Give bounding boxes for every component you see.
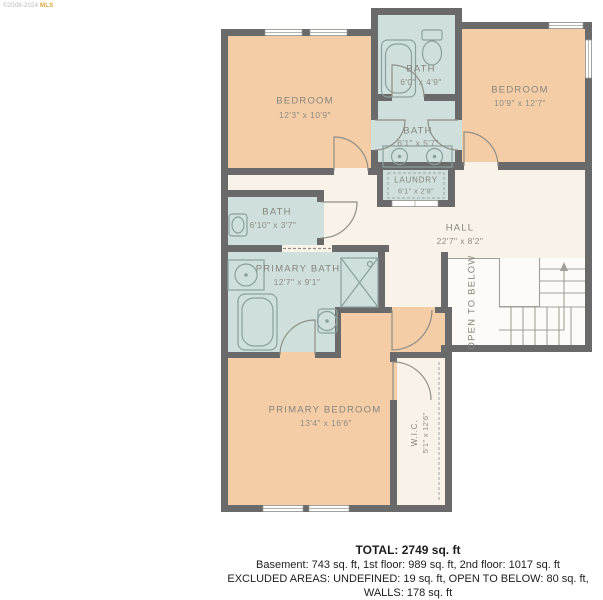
wall [221, 245, 282, 252]
sink-drain [245, 274, 247, 276]
laundry-bifold-door [392, 201, 438, 207]
primary-bedroom-dims: 13'4" x 16'6" [300, 418, 352, 428]
wall [228, 190, 324, 197]
wall [498, 162, 592, 170]
bath2-label: BATH [403, 126, 432, 137]
window [586, 40, 592, 78]
area-summary: TOTAL: 2749 sq. ft Basement: 743 sq. ft,… [210, 543, 603, 600]
wall [371, 15, 378, 120]
bedroom2-floor [462, 29, 585, 162]
bath1-dims: 6'0" x 4'9" [400, 77, 442, 87]
sink-drain [398, 155, 400, 157]
bath3-dims: 6'10" x 3'7" [250, 220, 297, 230]
wall [435, 307, 448, 313]
hall-label: HALL [446, 223, 475, 234]
bedroom1-dims: 12'3" x 10'9" [279, 110, 331, 120]
bedroom1-label: BEDROOM [276, 96, 334, 107]
wall [441, 345, 592, 352]
floor-areas: Basement: 743 sq. ft, 1st floor: 989 sq.… [210, 558, 603, 572]
wall [424, 94, 462, 101]
bath2-dims: 6'1" x 5'7" [397, 138, 439, 148]
wall [221, 29, 228, 512]
wall [371, 162, 464, 170]
wall [368, 168, 378, 175]
total-area: TOTAL: 2749 sq. ft [210, 543, 603, 557]
bedroom2-dims: 10'9" x 12'7" [494, 98, 546, 108]
primary-bath-dims: 12'7" x 9'1" [274, 277, 321, 287]
wall [221, 168, 334, 175]
bath3-label: BATH [262, 207, 291, 218]
wall [390, 400, 397, 505]
window [309, 506, 349, 512]
watermark-text: ©2008-2024 [3, 3, 38, 9]
floor-plan-page: ©2008-2024 MLS BEDROOM 12'3" x 10'9" BAT… [0, 0, 603, 600]
window [263, 506, 303, 512]
primary-bedroom-label: PRIMARY BEDROOM [269, 405, 382, 416]
window [549, 23, 583, 29]
wall [221, 352, 280, 358]
laundry-floor [383, 170, 448, 200]
hall-corridor-floor [378, 252, 448, 313]
laundry-dims: 6'1" x 2'8" [398, 187, 434, 196]
wall [315, 352, 341, 358]
wall [455, 150, 462, 162]
wall [445, 352, 452, 512]
wic-dims: 5'1" x 12'6" [420, 413, 431, 454]
hall-dims: 22'7" x 8'2" [437, 236, 484, 246]
wall [371, 8, 462, 15]
bath1-floor [371, 15, 462, 101]
primary-bath-label: PRIMARY BATH [256, 264, 341, 275]
wall [455, 15, 462, 120]
mls-watermark: ©2008-2024 MLS [3, 3, 53, 9]
window [265, 30, 302, 36]
sink-drain [326, 320, 328, 322]
wall [317, 190, 324, 202]
wall [378, 245, 385, 313]
sink-drain [433, 155, 435, 157]
bath1-label: BATH [406, 64, 435, 75]
wall [390, 358, 397, 362]
wall [317, 238, 324, 245]
wall [390, 352, 452, 358]
excluded-areas: EXCLUDED AREAS: UNDEFINED: 19 sq. ft, OP… [210, 572, 603, 600]
watermark-mls-logo: MLS [40, 3, 53, 9]
wall [335, 307, 392, 313]
window [310, 30, 347, 36]
primary-bedroom-floor [228, 352, 397, 512]
bedroom2-label: BEDROOM [491, 85, 549, 96]
laundry-label: LAUNDRY [394, 176, 438, 185]
wic-label: W.I.C. [409, 413, 421, 454]
wic-label-block: W.I.C. 5'1" x 12'6" [409, 413, 431, 454]
open-to-below-label: OPEN TO BELOW [467, 255, 478, 350]
wall [441, 252, 448, 313]
